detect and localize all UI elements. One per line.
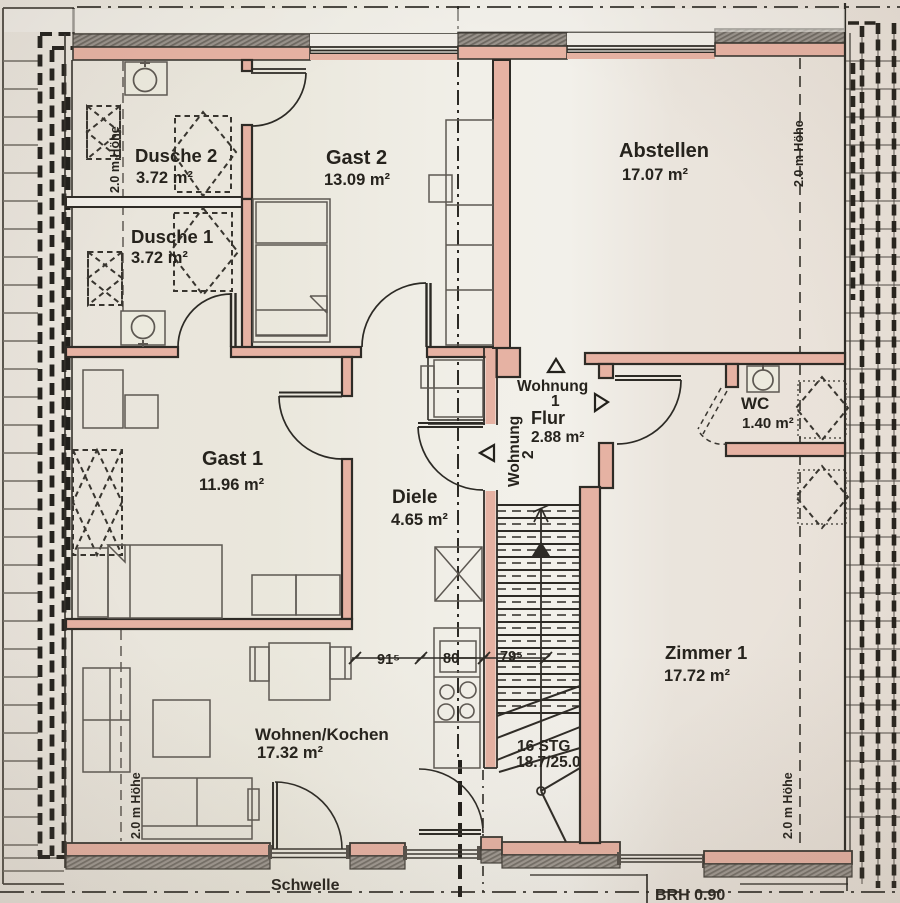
svg-text:4.65 m²: 4.65 m² [391, 511, 448, 529]
svg-text:Gast 2: Gast 2 [326, 147, 387, 169]
svg-text:13.09 m²: 13.09 m² [324, 171, 391, 189]
svg-text:3.72 m²: 3.72 m² [136, 169, 193, 187]
svg-text:2.0 m Höhe: 2.0 m Höhe [792, 120, 806, 187]
svg-text:WC: WC [741, 394, 769, 413]
svg-text:17.32 m²: 17.32 m² [257, 744, 324, 762]
svg-text:2.0 m Höhe: 2.0 m Höhe [781, 772, 795, 839]
svg-text:2.0 m Höhe: 2.0 m Höhe [129, 772, 143, 839]
svg-text:1.40 m²: 1.40 m² [742, 415, 794, 432]
svg-text:Zimmer 1: Zimmer 1 [665, 642, 747, 663]
svg-text:Dusche 2: Dusche 2 [135, 145, 217, 166]
svg-text:Abstellen: Abstellen [619, 140, 709, 162]
svg-text:79⁵: 79⁵ [500, 649, 523, 665]
svg-text:Flur: Flur [531, 408, 565, 428]
svg-text:17.07 m²: 17.07 m² [622, 166, 689, 184]
svg-text:3.72 m²: 3.72 m² [131, 249, 188, 267]
svg-text:BRH 0.90: BRH 0.90 [655, 887, 725, 903]
svg-text:2.88 m²: 2.88 m² [531, 429, 584, 446]
svg-text:2.0 m Höhe: 2.0 m Höhe [108, 126, 122, 193]
svg-text:Gast 1: Gast 1 [202, 448, 263, 470]
svg-text:18.7/25.0: 18.7/25.0 [516, 754, 581, 771]
svg-text:11.96 m²: 11.96 m² [199, 476, 265, 494]
svg-text:Diele: Diele [392, 487, 437, 508]
svg-text:2: 2 [520, 450, 537, 459]
svg-text:17.72 m²: 17.72 m² [664, 667, 731, 685]
svg-text:Dusche 1: Dusche 1 [131, 226, 213, 247]
svg-text:91⁵: 91⁵ [377, 652, 400, 668]
svg-text:Schwelle: Schwelle [271, 877, 340, 894]
svg-text:Wohnen/Kochen: Wohnen/Kochen [255, 725, 389, 744]
svg-text:16 STG: 16 STG [517, 738, 570, 755]
svg-text:80: 80 [443, 651, 459, 667]
